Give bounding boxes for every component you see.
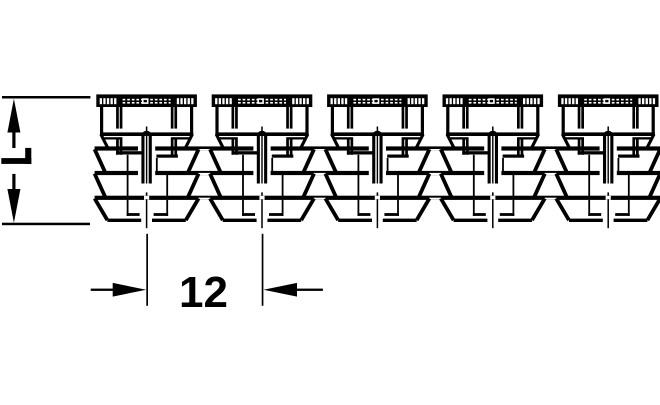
svg-text:12: 12 — [179, 268, 228, 317]
